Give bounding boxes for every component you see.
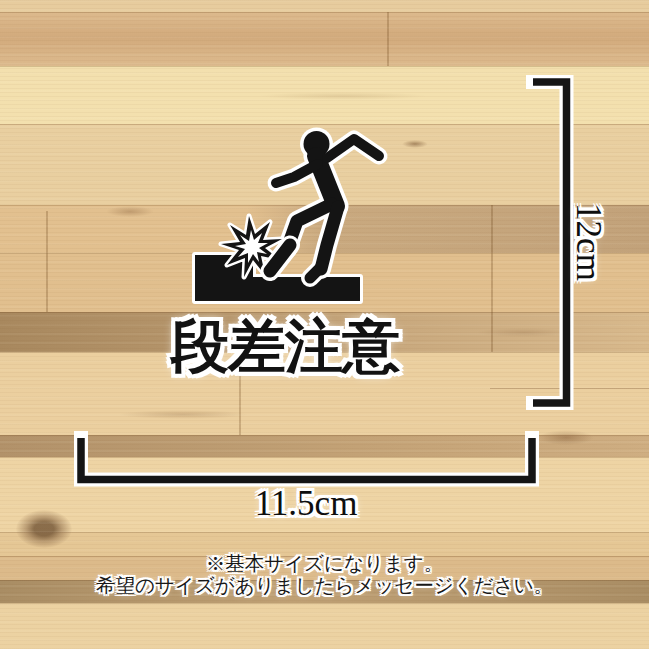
width-dimension-bracket xyxy=(81,438,532,480)
sticker-title: 段差注意 xyxy=(171,308,399,386)
size-note: ※基本サイズになります。 希望のサイズがありましたらメッセージください。 xyxy=(0,553,649,596)
height-dimension-label: 12cm xyxy=(568,203,608,281)
size-note-line-1: ※基本サイズになります。 xyxy=(0,553,649,575)
size-note-line-2: 希望のサイズがありましたらメッセージください。 xyxy=(0,575,649,597)
front-foot xyxy=(270,245,290,271)
width-dimension-label: 11.5cm xyxy=(255,484,358,524)
product-photo: 段差注意 12cm 11.5cm ※基本サイズになります。 希望のサイズがありま… xyxy=(0,0,649,649)
height-dimension-bracket xyxy=(533,82,567,403)
